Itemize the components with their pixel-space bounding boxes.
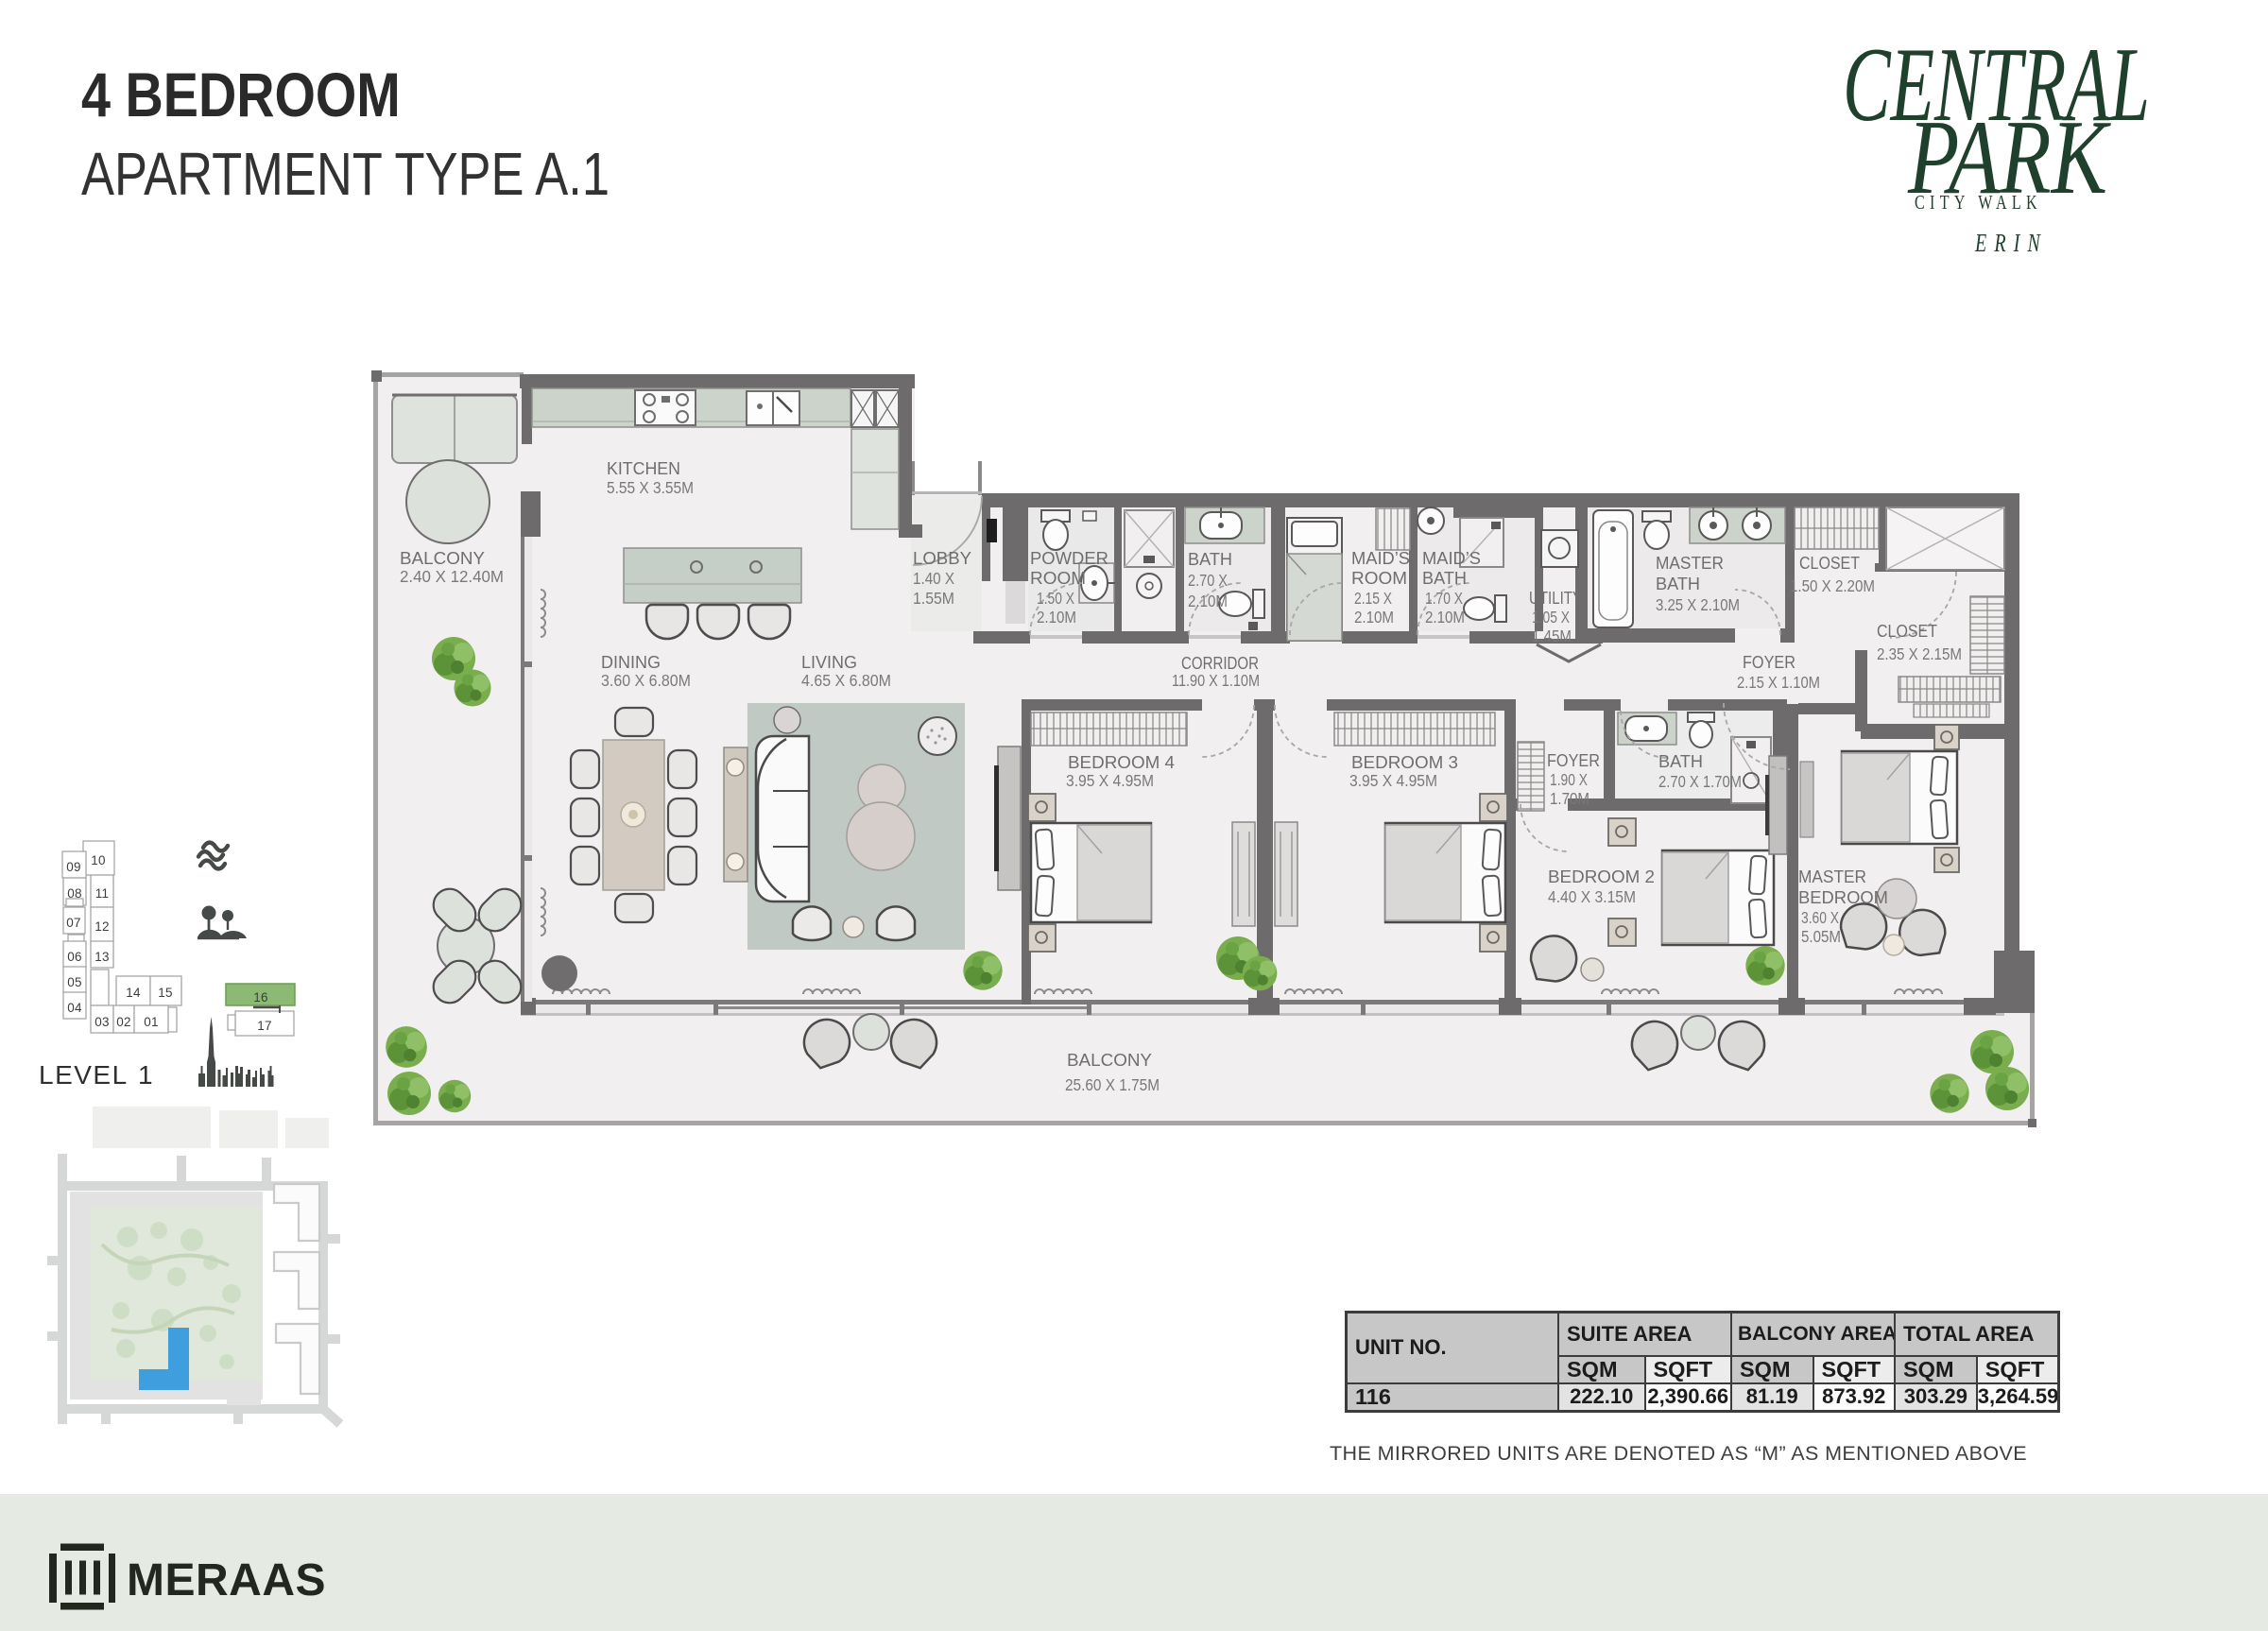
svg-text:BATH: BATH <box>1188 549 1232 569</box>
svg-text:ROOM: ROOM <box>1030 568 1086 588</box>
svg-text:14: 14 <box>126 986 141 1000</box>
svg-text:16: 16 <box>253 990 268 1004</box>
svg-text:04: 04 <box>67 1001 82 1015</box>
svg-text:CORRIDOR: CORRIDOR <box>1181 653 1259 673</box>
svg-text:02: 02 <box>116 1015 131 1029</box>
svg-text:CLOSET: CLOSET <box>1877 621 1937 641</box>
svg-text:05: 05 <box>67 975 82 989</box>
svg-text:1.45M: 1.45M <box>1532 627 1572 645</box>
svg-text:4.40 X 3.15M: 4.40 X 3.15M <box>1548 887 1636 906</box>
svg-text:BALCONY: BALCONY <box>400 548 485 568</box>
svg-text:08: 08 <box>67 886 82 901</box>
svg-text:2.10M: 2.10M <box>1188 592 1228 610</box>
svg-text:3.60 X: 3.60 X <box>1801 908 1839 927</box>
svg-text:POWDER: POWDER <box>1030 548 1108 568</box>
svg-text:2.10M: 2.10M <box>1037 608 1076 627</box>
svg-text:25.60 X 1.75M: 25.60 X 1.75M <box>1065 1075 1160 1094</box>
svg-text:LOBBY: LOBBY <box>913 548 971 568</box>
svg-text:2.70 X 1.70M: 2.70 X 1.70M <box>1658 772 1742 791</box>
svg-text:BEDROOM 3: BEDROOM 3 <box>1351 752 1458 772</box>
svg-text:11: 11 <box>95 886 110 901</box>
svg-text:2.15 X: 2.15 X <box>1354 589 1392 608</box>
svg-text:MASTER: MASTER <box>1656 553 1724 573</box>
svg-text:BEDROOM: BEDROOM <box>1798 887 1888 907</box>
svg-text:5.55 X 3.55M: 5.55 X 3.55M <box>607 478 694 497</box>
svg-text:1.05 X: 1.05 X <box>1532 608 1570 627</box>
svg-text:1.90 X: 1.90 X <box>1550 770 1588 789</box>
svg-text:10: 10 <box>91 853 106 867</box>
svg-text:2.15 X 1.10M: 2.15 X 1.10M <box>1737 673 1820 692</box>
svg-text:ROOM: ROOM <box>1351 568 1407 588</box>
svg-text:FOYER: FOYER <box>1743 652 1795 672</box>
svg-text:2.40 X 12.40M: 2.40 X 12.40M <box>400 567 504 586</box>
svg-text:2.70 X: 2.70 X <box>1188 571 1228 590</box>
svg-text:BATH: BATH <box>1656 574 1700 593</box>
svg-text:1.50 X 2.20M: 1.50 X 2.20M <box>1790 576 1875 595</box>
svg-text:01: 01 <box>144 1015 159 1029</box>
svg-text:1.70 X: 1.70 X <box>1425 589 1463 608</box>
svg-text:BEDROOM 4: BEDROOM 4 <box>1068 752 1175 772</box>
svg-text:07: 07 <box>66 916 81 930</box>
svg-text:11.90 X 1.10M: 11.90 X 1.10M <box>1172 671 1260 690</box>
svg-text:LIVING: LIVING <box>801 652 857 672</box>
svg-text:3.60 X 6.80M: 3.60 X 6.80M <box>601 671 691 690</box>
svg-text:1.55M: 1.55M <box>913 589 954 608</box>
svg-text:03: 03 <box>94 1015 110 1029</box>
svg-text:12: 12 <box>94 919 110 934</box>
svg-text:BALCONY: BALCONY <box>1067 1050 1152 1070</box>
svg-text:MAID’S: MAID’S <box>1422 548 1481 568</box>
svg-text:1.50 X: 1.50 X <box>1037 589 1074 608</box>
svg-text:3.25 X 2.10M: 3.25 X 2.10M <box>1656 595 1740 614</box>
svg-text:BATH: BATH <box>1422 568 1467 588</box>
svg-text:4.65 X 6.80M: 4.65 X 6.80M <box>801 671 891 690</box>
svg-text:3.95 X 4.95M: 3.95 X 4.95M <box>1066 771 1154 790</box>
svg-text:MERAAS: MERAAS <box>127 1555 326 1605</box>
svg-text:MAID’S: MAID’S <box>1351 548 1410 568</box>
svg-text:1: 1 <box>138 1060 153 1090</box>
svg-text:2.10M: 2.10M <box>1354 608 1394 627</box>
svg-text:15: 15 <box>158 986 173 1000</box>
svg-text:13: 13 <box>94 950 110 964</box>
svg-text:LEVEL: LEVEL <box>39 1060 129 1090</box>
svg-text:06: 06 <box>67 950 82 964</box>
svg-text:UTILITY: UTILITY <box>1529 588 1582 608</box>
svg-text:1.70M: 1.70M <box>1550 789 1589 808</box>
svg-text:1.40 X: 1.40 X <box>913 569 954 588</box>
svg-text:MASTER: MASTER <box>1798 867 1866 886</box>
svg-text:2.10M: 2.10M <box>1425 608 1465 627</box>
svg-text:17: 17 <box>257 1019 272 1033</box>
svg-text:5.05M: 5.05M <box>1801 927 1841 946</box>
svg-text:BATH: BATH <box>1658 751 1703 771</box>
svg-text:09: 09 <box>66 860 81 874</box>
svg-text:CLOSET: CLOSET <box>1799 553 1860 573</box>
svg-text:DINING: DINING <box>601 652 661 672</box>
svg-text:BEDROOM 2: BEDROOM 2 <box>1548 867 1655 886</box>
svg-text:KITCHEN: KITCHEN <box>607 458 680 478</box>
svg-text:FOYER: FOYER <box>1547 750 1600 770</box>
svg-text:2.35 X 2.15M: 2.35 X 2.15M <box>1877 644 1962 663</box>
svg-text:3.95 X 4.95M: 3.95 X 4.95M <box>1349 771 1437 790</box>
